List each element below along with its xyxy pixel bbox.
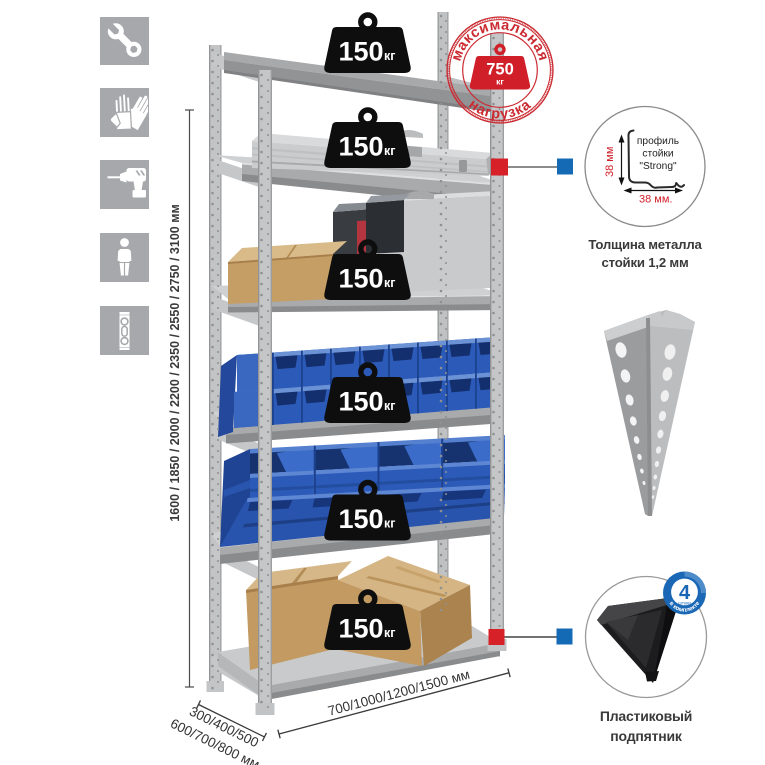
svg-text:Толщина металла: Толщина металла xyxy=(588,237,702,252)
svg-text:стойки 1,2 мм: стойки 1,2 мм xyxy=(601,255,688,270)
svg-text:38 мм.: 38 мм. xyxy=(639,194,672,206)
svg-text:штуки: штуки xyxy=(678,601,691,606)
svg-text:Пластиковый: Пластиковый xyxy=(600,708,692,724)
svg-text:кг: кг xyxy=(496,77,504,87)
svg-text:стойки: стойки xyxy=(642,149,673,160)
svg-text:38 мм: 38 мм xyxy=(604,147,616,177)
svg-text:"Strong": "Strong" xyxy=(639,161,677,172)
svg-text:подпятник: подпятник xyxy=(610,728,683,744)
svg-text:профиль: профиль xyxy=(637,135,679,147)
svg-text:1600 / 1850 / 2000 / 2200 / 23: 1600 / 1850 / 2000 / 2200 / 2350 / 2550 … xyxy=(168,204,182,521)
